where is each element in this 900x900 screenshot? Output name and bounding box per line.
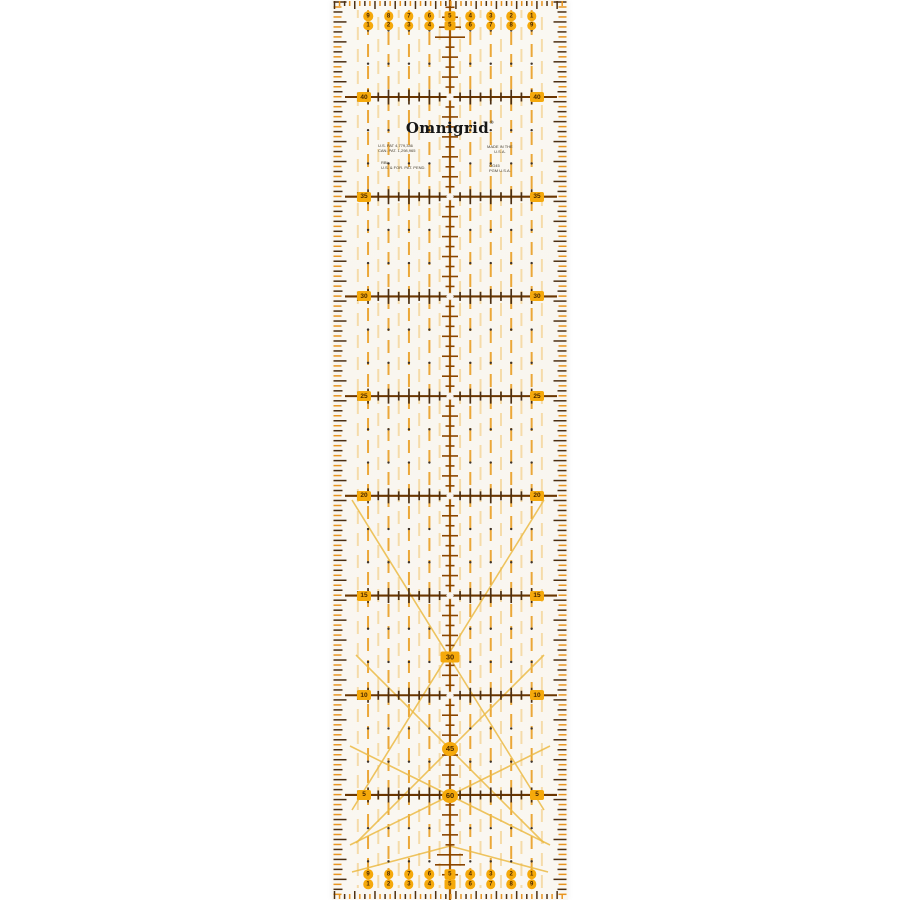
grid-dot xyxy=(387,860,389,862)
edge-number-bottom: 8 xyxy=(506,879,516,889)
grid-dot xyxy=(510,827,512,829)
grid-dot xyxy=(367,62,369,64)
grid-dot xyxy=(510,727,512,729)
intersection-highlight xyxy=(446,93,454,101)
edge-number-bottom: 4 xyxy=(425,879,435,889)
grid-dot xyxy=(530,461,532,463)
grid-dot xyxy=(510,328,512,330)
intersection-highlight xyxy=(446,193,454,201)
grid-dot xyxy=(408,229,410,231)
grid-dot xyxy=(367,827,369,829)
edge-number-bottom: 6 xyxy=(466,879,476,889)
intersection-highlight xyxy=(446,592,454,600)
grid-dot xyxy=(367,229,369,231)
edge-number-bottom: 9 xyxy=(527,879,537,889)
grid-dot xyxy=(408,328,410,330)
grid-dot xyxy=(490,428,492,430)
grid-dot xyxy=(408,528,410,530)
grid-dot xyxy=(387,528,389,530)
grid-dot xyxy=(428,162,430,164)
scale-label-right: 15 xyxy=(530,591,544,601)
origin-text-block: MADE IN THE U.S.A. xyxy=(487,145,513,155)
grid-dot xyxy=(428,760,430,762)
grid-dot xyxy=(428,561,430,563)
grid-dot xyxy=(408,428,410,430)
origin-text-block-2: OG45 PGM U.S.A. xyxy=(489,164,511,174)
grid-dot xyxy=(490,362,492,364)
grid-dot xyxy=(530,362,532,364)
grid-dot xyxy=(387,362,389,364)
edge-number-top: 6 xyxy=(466,21,476,31)
edge-number-bottom: 8 xyxy=(384,869,394,879)
grid-dot xyxy=(387,428,389,430)
grid-dot xyxy=(367,362,369,364)
edge-number-top: 8 xyxy=(506,21,516,31)
grid-dot xyxy=(490,827,492,829)
grid-dot xyxy=(530,162,532,164)
origin-line: PGM U.S.A. xyxy=(489,169,511,174)
grid-dot xyxy=(367,628,369,630)
grid-dot xyxy=(367,528,369,530)
grid-dot xyxy=(469,229,471,231)
grid-dot xyxy=(490,461,492,463)
edge-number-bottom: 7 xyxy=(486,879,496,889)
grid-dot xyxy=(530,262,532,264)
grid-dot xyxy=(367,860,369,862)
grid-dot xyxy=(510,760,512,762)
grid-dot xyxy=(387,661,389,663)
edge-number-top: 3 xyxy=(404,21,414,31)
grid-dot xyxy=(387,561,389,563)
grid-dot xyxy=(530,561,532,563)
grid-dot xyxy=(367,162,369,164)
grid-dot xyxy=(530,229,532,231)
grid-dot xyxy=(530,62,532,64)
edge-number-bottom: 3 xyxy=(486,869,496,879)
brand-name: Omnigrid xyxy=(406,119,489,137)
edge-number-top: 1 xyxy=(363,21,373,31)
grid-dot xyxy=(490,62,492,64)
grid-dot xyxy=(408,262,410,264)
scale-label-left: 40 xyxy=(357,92,371,102)
grid-dot xyxy=(428,528,430,530)
grid-dot xyxy=(490,528,492,530)
grid-dot xyxy=(387,827,389,829)
grid-dot xyxy=(469,760,471,762)
edge-number-top: 2 xyxy=(384,21,394,31)
grid-dot xyxy=(469,62,471,64)
grid-dot xyxy=(510,661,512,663)
scale-label-right: 20 xyxy=(530,491,544,501)
grid-dot xyxy=(530,428,532,430)
scale-label-right: 40 xyxy=(530,92,544,102)
edge-number-bottom: 1 xyxy=(527,869,537,879)
grid-dot xyxy=(428,62,430,64)
grid-dot xyxy=(367,661,369,663)
grid-dot xyxy=(428,229,430,231)
grid-dot xyxy=(530,860,532,862)
scale-label-right: 35 xyxy=(530,192,544,202)
grid-dot xyxy=(490,727,492,729)
grid-dot xyxy=(367,461,369,463)
grid-dot xyxy=(469,661,471,663)
grid-dot xyxy=(428,262,430,264)
edge-number-top: 9 xyxy=(527,21,537,31)
intersection-highlight xyxy=(446,392,454,400)
scale-label-left: 15 xyxy=(357,591,371,601)
edge-number-top: 3 xyxy=(486,11,496,21)
grid-dot xyxy=(530,328,532,330)
grid-dot xyxy=(469,827,471,829)
grid-dot xyxy=(428,461,430,463)
grid-dot xyxy=(469,428,471,430)
grid-dot xyxy=(387,62,389,64)
scale-label-left: 25 xyxy=(357,391,371,401)
intersection-highlight xyxy=(446,292,454,300)
grid-dot xyxy=(469,628,471,630)
grid-dot xyxy=(408,760,410,762)
edge-number-bottom: 9 xyxy=(363,869,373,879)
patent-line: CAN. PAT. 1,298,965 xyxy=(378,149,415,154)
edge-number-top: 9 xyxy=(363,11,373,21)
brand-logo: Omnigrid® xyxy=(406,121,494,136)
grid-dot xyxy=(367,129,369,131)
origin-line: U.S.A. xyxy=(487,150,513,155)
scale-label-right: 25 xyxy=(530,391,544,401)
grid-dot xyxy=(428,727,430,729)
grid-dot xyxy=(408,827,410,829)
grid-dot xyxy=(408,727,410,729)
grid-dot xyxy=(530,661,532,663)
scale-label-left: 20 xyxy=(357,491,371,501)
grid-dot xyxy=(530,760,532,762)
grid-dot xyxy=(510,528,512,530)
scale-label-left: 35 xyxy=(357,192,371,202)
grid-dot xyxy=(408,362,410,364)
grid-dot xyxy=(510,628,512,630)
grid-dot xyxy=(530,827,532,829)
intersection-highlight xyxy=(446,492,454,500)
grid-dot xyxy=(408,461,410,463)
grid-dot xyxy=(469,860,471,862)
grid-dot xyxy=(387,129,389,131)
grid-dot xyxy=(387,328,389,330)
grid-dot xyxy=(408,561,410,563)
grid-dot xyxy=(367,328,369,330)
grid-dot xyxy=(469,328,471,330)
grid-dot xyxy=(469,262,471,264)
edge-number-bottom: 6 xyxy=(425,869,435,879)
grid-dot xyxy=(490,328,492,330)
scale-label-right: 10 xyxy=(530,690,544,700)
grid-dot xyxy=(428,827,430,829)
grid-dot xyxy=(428,428,430,430)
grid-dot xyxy=(469,162,471,164)
angle-line xyxy=(352,846,450,872)
grid-dot xyxy=(428,328,430,330)
grid-dot xyxy=(469,362,471,364)
angle-line xyxy=(450,846,548,872)
patent-line: U.S. & FOR. PAT. PEND. xyxy=(381,166,426,171)
grid-dot xyxy=(490,860,492,862)
patent-text-block-2: RBL U.S. & FOR. PAT. PEND. xyxy=(381,161,426,171)
grid-dot xyxy=(387,461,389,463)
grid-dot xyxy=(408,628,410,630)
edge-number-bottom: 5 xyxy=(444,879,455,889)
edge-number-top: 5 xyxy=(444,11,455,21)
grid-dot xyxy=(510,860,512,862)
grid-dot xyxy=(510,62,512,64)
grid-dot xyxy=(387,727,389,729)
scale-label-right: 30 xyxy=(530,291,544,301)
grid-dot xyxy=(408,661,410,663)
grid-dot xyxy=(367,428,369,430)
edge-number-bottom: 1 xyxy=(363,879,373,889)
patent-text-block: U.S. PAT 4,779,346 CAN. PAT. 1,298,965 xyxy=(378,144,415,154)
grid-dot xyxy=(530,727,532,729)
product-photo: Omnigrid® U.S. PAT 4,779,346 CAN. PAT. 1… xyxy=(0,0,900,900)
grid-dot xyxy=(530,528,532,530)
angle-label-45: 45 xyxy=(442,742,458,756)
scale-label-left: 5 xyxy=(357,790,371,800)
grid-dot xyxy=(469,461,471,463)
grid-dot xyxy=(490,561,492,563)
grid-dot xyxy=(428,628,430,630)
grid-dot xyxy=(387,760,389,762)
grid-dot xyxy=(510,129,512,131)
grid-dot xyxy=(510,428,512,430)
intersection-highlight xyxy=(446,691,454,699)
edge-number-top: 1 xyxy=(527,11,537,21)
scale-label-left: 10 xyxy=(357,690,371,700)
grid-dot xyxy=(387,229,389,231)
grid-dot xyxy=(510,262,512,264)
grid-dot xyxy=(469,561,471,563)
grid-dot xyxy=(469,528,471,530)
grid-dot xyxy=(367,760,369,762)
edge-number-top: 6 xyxy=(425,11,435,21)
angle-label-30: 30 xyxy=(441,652,460,663)
grid-dot xyxy=(530,628,532,630)
grid-dot xyxy=(428,860,430,862)
grid-dot xyxy=(510,561,512,563)
edge-number-top: 5 xyxy=(444,21,455,31)
grid-dot xyxy=(490,229,492,231)
edge-number-top: 8 xyxy=(384,11,394,21)
edge-number-bottom: 2 xyxy=(506,869,516,879)
grid-dot xyxy=(469,727,471,729)
grid-dot xyxy=(490,262,492,264)
edge-number-top: 4 xyxy=(425,21,435,31)
angle-label-60: 60 xyxy=(442,789,458,803)
grid-dot xyxy=(367,262,369,264)
grid-dot xyxy=(530,129,532,131)
grid-dot xyxy=(387,262,389,264)
edge-number-bottom: 3 xyxy=(404,879,414,889)
registered-trademark-icon: ® xyxy=(489,120,494,126)
edge-number-top: 7 xyxy=(404,11,414,21)
edge-number-bottom: 4 xyxy=(466,869,476,879)
grid-dot xyxy=(408,62,410,64)
edge-number-bottom: 7 xyxy=(404,869,414,879)
grid-dot xyxy=(510,461,512,463)
grid-dot xyxy=(490,661,492,663)
edge-number-top: 4 xyxy=(466,11,476,21)
edge-number-bottom: 2 xyxy=(384,879,394,889)
grid-dot xyxy=(510,229,512,231)
grid-dot xyxy=(428,362,430,364)
edge-number-top: 7 xyxy=(486,21,496,31)
grid-dot xyxy=(490,628,492,630)
grid-dot xyxy=(490,760,492,762)
scale-label-left: 30 xyxy=(357,291,371,301)
grid-dot xyxy=(387,628,389,630)
edge-number-top: 2 xyxy=(506,11,516,21)
grid-dot xyxy=(408,860,410,862)
grid-dot xyxy=(428,661,430,663)
grid-dot xyxy=(367,561,369,563)
grid-dot xyxy=(510,362,512,364)
grid-dot xyxy=(367,727,369,729)
scale-label-right: 5 xyxy=(530,790,544,800)
edge-number-bottom: 5 xyxy=(444,869,455,879)
